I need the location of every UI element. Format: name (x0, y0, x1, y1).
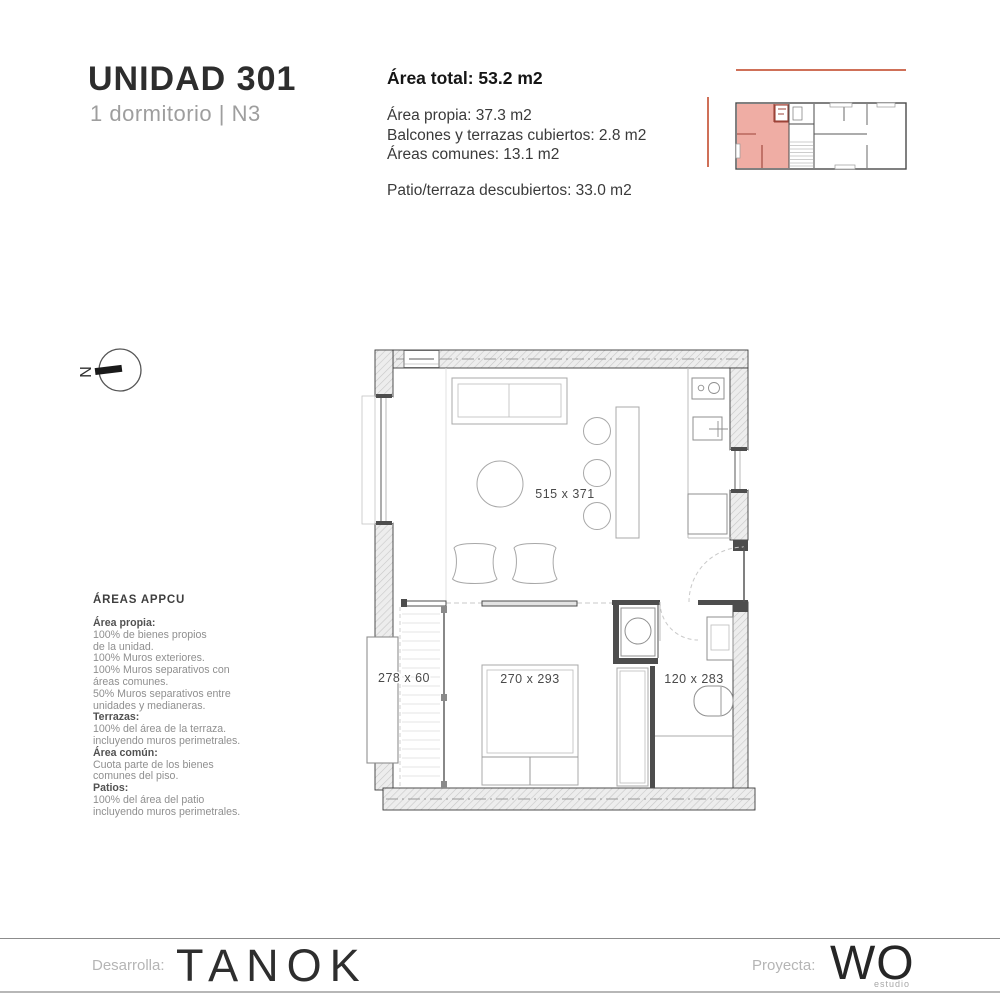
bar-stool (584, 503, 611, 530)
washing-machine (621, 608, 655, 656)
building-key-plan (734, 101, 908, 171)
developer-logo: TANOK (176, 940, 368, 992)
appcu-line: 100% del área del patio (93, 795, 293, 807)
bar-stool (584, 460, 611, 487)
appcu-line: incluyendo muros perimetrales. (93, 807, 293, 819)
footer-divider-bottom (0, 991, 1000, 993)
left-window (375, 397, 393, 523)
window-slab-edge (362, 396, 375, 524)
dimension-label-bathroom: 120 x 283 (664, 672, 723, 686)
kitchen (688, 368, 732, 538)
appcu-line: áreas comunes. (93, 677, 293, 689)
area-propia: Área propia: 37.3 m2 (387, 106, 687, 126)
dimension-label-bedroom: 270 x 293 (500, 672, 559, 686)
developer-label: Desarrolla: (92, 957, 165, 974)
page-title: UNIDAD 301 (88, 60, 296, 99)
architect-label: Proyecta: (752, 957, 815, 974)
appcu-title: ÁREAS APPCU (93, 594, 293, 606)
sliding-door (482, 601, 577, 606)
kitchen-island (616, 407, 639, 538)
bathroom-partition-wall (650, 666, 655, 788)
partition (401, 599, 613, 607)
appcu-line: 100% de bienes propios (93, 630, 293, 642)
floor-plan: 515 x 371 270 x 293 120 x 283 278 x 60 (360, 340, 760, 815)
area-summary: Área total: 53.2 m2 Área propia: 37.3 m2… (387, 68, 687, 200)
accent-line-vertical (707, 97, 709, 167)
appcu-line: Área común: (93, 748, 293, 760)
area-patio: Patio/terraza descubiertos: 33.0 m2 (387, 182, 687, 200)
area-total: Área total: 53.2 m2 (387, 68, 687, 89)
pouf (453, 544, 498, 584)
laundry-niche (612, 600, 660, 664)
bathroom-door-arc (660, 602, 698, 640)
north-label: N (80, 366, 95, 378)
appcu-line: incluyendo muros perimetrales. (93, 736, 293, 748)
architect-tagline: estudio (874, 979, 910, 989)
bar-stool (584, 418, 611, 445)
living-room (452, 378, 639, 584)
wardrobe (617, 668, 648, 786)
planter (367, 637, 398, 763)
dimension-label-living: 515 x 371 (535, 487, 594, 501)
appcu-notes: ÁREAS APPCU Área propia: 100% de bienes … (93, 594, 293, 819)
north-arrow-icon: N (80, 340, 150, 400)
toilet (694, 686, 733, 716)
appcu-line: 50% Muros separativos entre (93, 689, 293, 701)
accent-line-horizontal (736, 69, 906, 71)
dining-table (477, 461, 523, 507)
area-comunes: Áreas comunes: 13.1 m2 (387, 145, 687, 165)
dimension-label-balcony: 278 x 60 (378, 671, 430, 685)
pouf (513, 544, 558, 584)
fridge (688, 494, 727, 534)
balcony-door (404, 601, 446, 606)
kitchen-window (730, 450, 748, 490)
area-balcones: Balcones y terrazas cubiertos: 2.8 m2 (387, 126, 687, 146)
plan-sheet: UNIDAD 301 1 dormitorio | N3 Área total:… (0, 0, 1000, 1000)
page-subtitle: 1 dormitorio | N3 (90, 101, 261, 127)
bathroom (655, 600, 733, 736)
